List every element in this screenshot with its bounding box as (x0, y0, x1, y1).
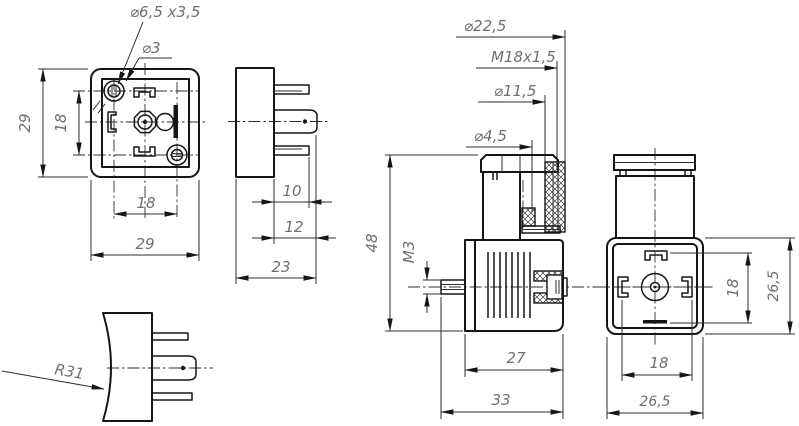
dim-label-hole: ⌀3 (142, 39, 161, 57)
dim-label-front-height-inner: 18 (52, 113, 70, 132)
dim-label-front-width-inner: 18 (136, 194, 155, 212)
dim-label-gland-thread: M18x1,5 (491, 48, 556, 66)
dim-label-plug-outer-w: 26,5 (639, 394, 670, 410)
center-contact (134, 111, 155, 132)
dim-label-m3: M3 (400, 241, 418, 264)
gasket-body (103, 313, 152, 421)
dim-label-pin-center: 12 (284, 218, 303, 236)
dim-label-terminal-screw: ⌀4,5 (474, 127, 507, 145)
dim-label-total-width: 33 (491, 391, 510, 409)
view-socket-front: 29 18 18 29 ⌀6,5 x3,5 ⌀3 (16, 3, 205, 261)
side-latch (157, 105, 179, 138)
pin-bottom (274, 146, 309, 155)
contact-slot-bottom (643, 320, 667, 324)
dim-label-radius: R31 (53, 360, 85, 383)
dim-label-body-width: 27 (506, 349, 526, 367)
upper-housing (483, 172, 520, 240)
dim-label-cable-bore: ⌀11,5 (494, 82, 536, 100)
contact-top (134, 88, 155, 97)
dim-label-side-depth: 23 (271, 258, 290, 276)
view-plug-front: 18 26,5 18 26,5 (597, 148, 795, 419)
pin-top (152, 333, 188, 340)
drawing-canvas: 29 18 18 29 ⌀6,5 x3,5 ⌀3 (0, 0, 799, 426)
screw-top-left (93, 81, 124, 113)
contact-slot-top (645, 251, 667, 260)
socket-side-body (236, 68, 274, 177)
dim-label-counterbore: ⌀6,5 x3,5 (130, 3, 200, 21)
gland-nut-front (614, 155, 695, 176)
view-socket-side: 10 12 23 (228, 68, 336, 284)
dim-label-front-height-outer: 29 (16, 113, 34, 132)
dim-label-front-width-outer: 29 (135, 235, 154, 253)
dim-label-plug-inner-v: 18 (724, 278, 742, 297)
technical-drawing: 29 18 18 29 ⌀6,5 x3,5 ⌀3 (0, 0, 799, 426)
dim-label-gland-od: ⌀22,5 (464, 17, 506, 35)
leader-screw-diameter: ⌀4,5 (466, 127, 532, 212)
dim-label-pin-short: 10 (282, 182, 301, 200)
gland-seal-section (545, 162, 565, 232)
view-gasket-side: R31 (2, 313, 213, 421)
dim-label-plug-inner-w: 18 (649, 354, 668, 372)
dim-label-plug-outer-v: 26,5 (766, 270, 782, 301)
pin-bottom (152, 393, 192, 400)
dim-label-section-height: 48 (363, 233, 381, 252)
pin-top (274, 85, 309, 94)
